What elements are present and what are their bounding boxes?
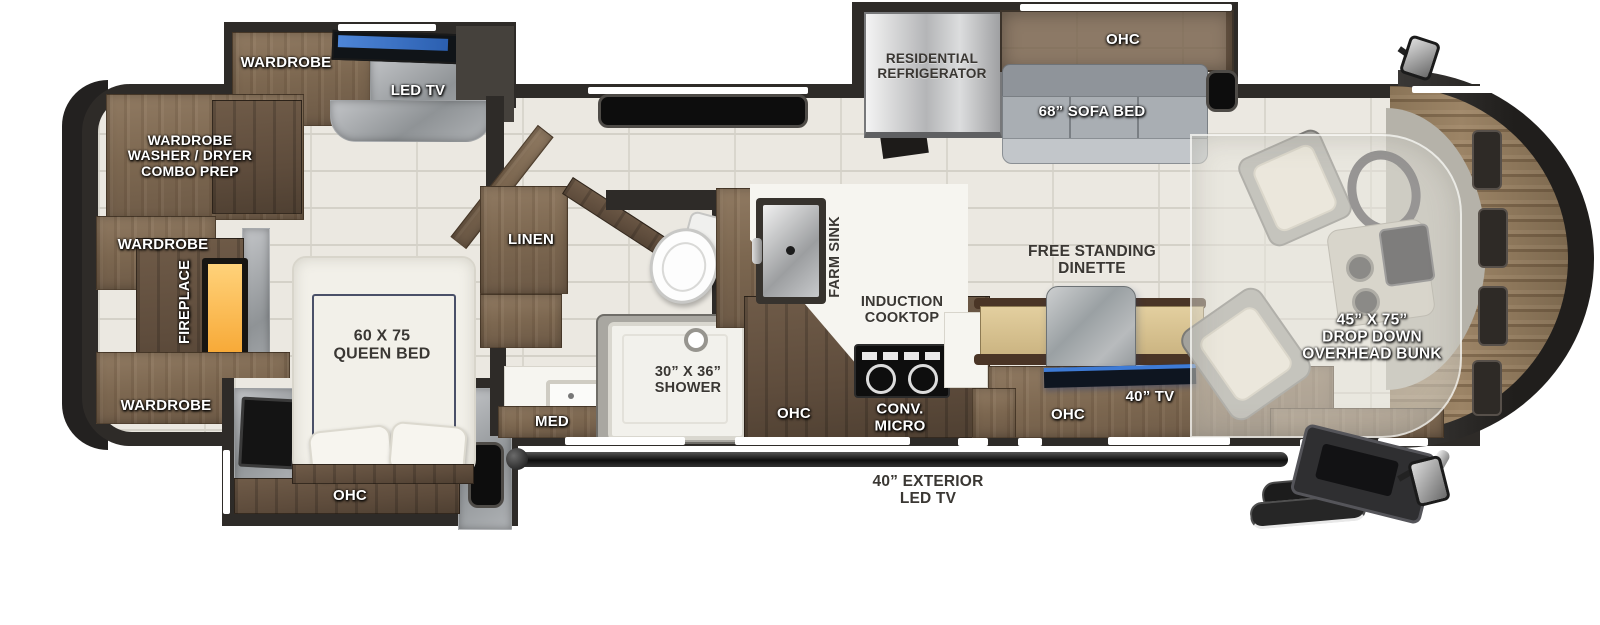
label-refrigerator: RESIDENTIAL REFRIGERATOR [877,52,986,82]
cooktop-button-1 [862,352,877,360]
sofa-back [1002,64,1208,100]
label-sofa-ohc: OHC [1106,32,1140,49]
label-tv-ohc: OHC [1051,407,1085,424]
label-wardrobe-slide: WARDROBE [241,55,332,72]
windshield-slot-3 [1478,286,1508,346]
exterior-tv-bar-endcap [506,448,528,470]
med-sink-drain [568,393,574,399]
label-sofa-bed: 68” SOFA BED [1039,104,1146,121]
label-tv-40: 40” TV [1126,389,1175,406]
farm-sink-faucet [752,238,762,264]
label-med: MED [535,414,569,431]
cooktop-button-3 [904,352,919,360]
label-overhead-bunk: 45” X 75” DROP DOWN OVERHEAD BUNK [1302,311,1442,362]
cooktop-burner-1 [866,364,896,394]
tv-cabinet-step [972,388,1016,438]
window-top-strip [588,87,808,94]
slide-wardrobe-window [338,24,436,31]
label-induction-cooktop: INDUCTION COOKTOP [861,295,943,327]
windshield-slot-2 [1478,208,1508,268]
label-queen-bed: 60 X 75 QUEEN BED [334,327,431,362]
label-kitchen-ohc: OHC [777,406,811,423]
label-wardrobe-side: WARDROBE [118,237,209,254]
dinette-bench-left [980,306,1052,360]
label-fireplace: FIREPLACE [178,260,194,344]
rv-floorplan: WARDROBE LED TV WARDROBE WASHER / DRYER … [0,0,1600,625]
cooktop-button-2 [883,352,898,360]
dinette-table [1046,286,1136,378]
window-bottom-2 [735,437,910,445]
bedroom-tv [238,397,298,470]
exterior-tv-bar [516,452,1288,467]
label-bed-slide-ohc: OHC [333,488,367,505]
windshield-strip-top [1412,86,1494,93]
cooktop-button-4 [925,352,940,360]
label-linen: LINEN [508,232,554,249]
window-bottom-1 [565,437,685,445]
windshield-slot-4 [1472,360,1502,416]
window-bottom-3 [958,438,988,446]
linen-lower-cabinet [480,294,562,348]
windshield-slot-1 [1472,130,1502,190]
window-galley-top [598,94,808,128]
label-conv-micro: CONV. MICRO [875,402,926,435]
label-led-tv: LED TV [391,83,446,100]
label-dinette: FREE STANDING DINETTE [1028,243,1156,277]
shower-head [684,328,708,352]
label-wardrobe-front: WARDROBE [121,398,212,415]
label-exterior-tv: 40” EXTERIOR LED TV [873,473,984,507]
overhead-bunk-overlay [1190,134,1462,438]
slide-sofa-window-strip [1020,4,1232,11]
label-farm-sink: FARM SINK [828,216,844,298]
cooktop-burner-2 [908,364,938,394]
window-bottom-4 [1018,438,1042,446]
label-washer-dryer: WARDROBE WASHER / DRYER COMBO PREP [128,133,252,179]
slide-sofa-side-window [1206,70,1238,112]
farm-sink-drain [786,246,795,255]
slide-bedroom-left-window [223,450,230,514]
window-bottom-5 [1108,437,1230,445]
bed-base [292,464,474,484]
tv-base-curve [330,100,492,142]
dinette-bench-left-front [974,354,1052,365]
label-shower: 30” X 36” SHOWER [655,365,721,397]
sofa-front [1002,138,1208,164]
tv-40-screen [1044,364,1196,388]
